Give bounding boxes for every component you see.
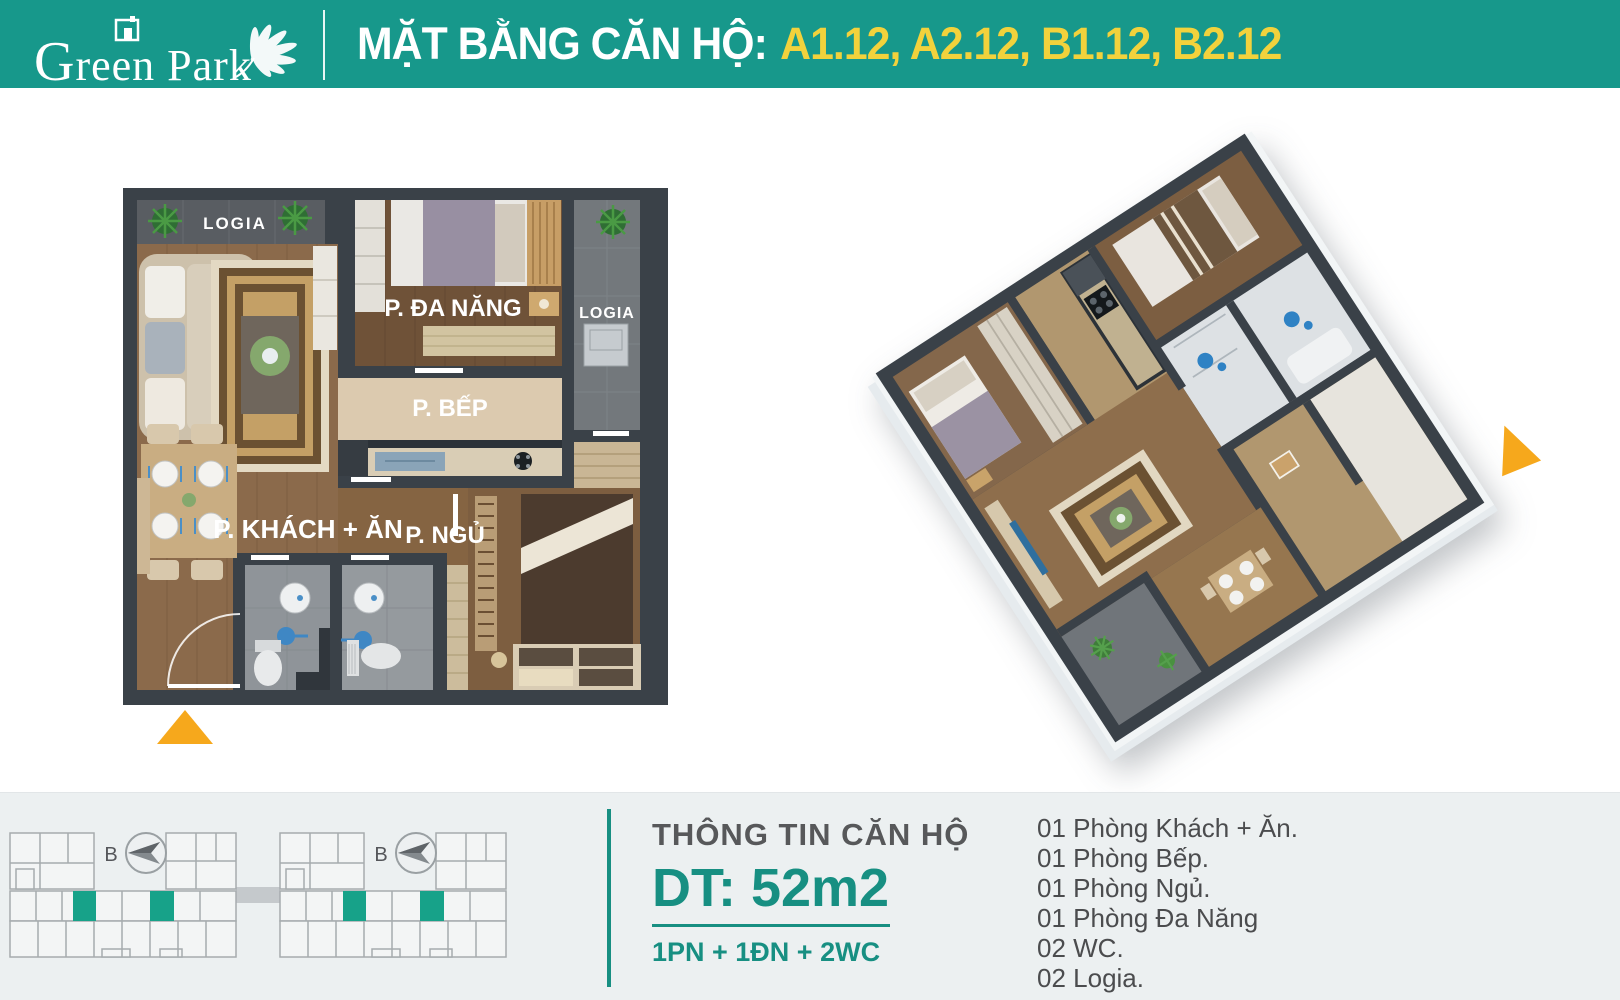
room-bathrooms: [233, 553, 447, 690]
compass-b-label: B: [104, 844, 117, 866]
dining-table: [141, 424, 237, 580]
info-config: 1PN + 1ĐN + 2WC: [652, 937, 880, 968]
label-bedroom: P. NGỦ: [405, 520, 485, 549]
door-logia-right: [593, 431, 629, 436]
door-bath-2: [351, 555, 389, 560]
door-multipurpose: [415, 368, 463, 373]
label-logia-top: LOGIA: [203, 214, 267, 233]
keyplan: B B: [8, 829, 508, 969]
page: Green Park: [0, 0, 1620, 1000]
page-title: MẶT BẰNG CĂN HỘ: A1.12, A2.12, B1.12, B2…: [357, 0, 1281, 88]
room-list: 01 Phòng Khách + Ăn. 01 Phòng Bếp. 01 Ph…: [1037, 813, 1298, 993]
keyplan-block-2: B: [280, 833, 506, 957]
floorplan-3d: [828, 100, 1528, 775]
leaf-icon: [216, 2, 326, 86]
coffee-table: [241, 316, 299, 414]
page-title-prefix: MẶT BẰNG CĂN HỘ:: [357, 18, 767, 70]
highlight-unit: [150, 891, 174, 921]
room-kitchen: [338, 378, 562, 476]
highlight-unit: [420, 891, 444, 921]
room-list-item: 01 Phòng Đa Năng: [1037, 903, 1298, 933]
room-list-item: 01 Phòng Bếp.: [1037, 843, 1298, 873]
highlight-unit: [73, 891, 96, 921]
logo: Green Park: [26, 0, 326, 88]
label-multipurpose: P. ĐA NĂNG: [384, 294, 521, 322]
highlight-unit: [343, 891, 366, 921]
info-divider: [652, 924, 890, 927]
room-bedroom: [468, 488, 641, 690]
logo-letter-g: G: [34, 31, 75, 93]
label-kitchen: P. BẾP: [412, 394, 488, 422]
door-kitchen: [351, 477, 391, 482]
keyplan-connector: [236, 887, 280, 903]
room-list-item: 01 Phòng Khách + Ăn.: [1037, 813, 1298, 843]
footer-bar: B B: [0, 792, 1620, 1000]
compass-b-label: B: [374, 844, 387, 866]
building-icon: [114, 16, 144, 42]
room-list-item: 02 Logia.: [1037, 963, 1298, 993]
room-list-item: 01 Phòng Ngủ.: [1037, 873, 1298, 903]
closet-strip: [447, 565, 468, 690]
compass-icon: [126, 833, 166, 873]
header-separator: [323, 10, 325, 80]
info-title: THÔNG TIN CĂN HỘ: [652, 817, 969, 853]
main-area: LOGIA P. ĐA NĂNG LOGIA P. BẾP P. KHÁCH +…: [0, 88, 1620, 792]
shelf: [137, 478, 150, 574]
closet-nook: [574, 442, 640, 488]
door-bath-1: [251, 555, 289, 560]
floorplan-2d: LOGIA P. ĐA NĂNG LOGIA P. BẾP P. KHÁCH +…: [123, 188, 668, 710]
bed-main: [513, 494, 641, 690]
label-living: P. KHÁCH + ĂN: [213, 514, 403, 544]
compass-icon: [396, 833, 436, 873]
info-area: DT: 52m2: [652, 857, 889, 919]
cabinet: [313, 246, 337, 350]
label-logia-right: LOGIA: [579, 305, 635, 322]
entrance-arrow-2d: [157, 710, 213, 744]
info-accent-line: [607, 809, 611, 987]
room-list-item: 02 WC.: [1037, 933, 1298, 963]
keyplan-block-1: B: [10, 833, 236, 957]
header-bar: Green Park: [0, 0, 1620, 88]
page-title-units: A1.12, A2.12, B1.12, B2.12: [780, 18, 1281, 70]
